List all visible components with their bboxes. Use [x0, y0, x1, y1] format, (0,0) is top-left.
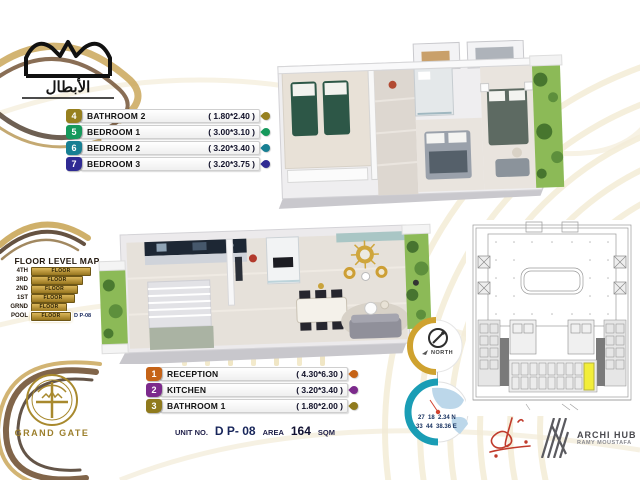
- legend-room-dims: ( 3.20*3.75 ): [208, 159, 255, 169]
- grand-gate-logo: GRAND GATE: [10, 372, 94, 438]
- legend-row-bathroom2: 4 BATHROOM 2( 1.80*2.40 ): [66, 109, 270, 123]
- upper-floor-plan-render: [266, 40, 566, 212]
- legend-number-badge: 3: [146, 399, 162, 413]
- area-value: 164: [291, 424, 311, 438]
- location-map-widget: 27 18 2.34 N 33 44 38.36 E: [402, 378, 472, 446]
- longitude-text: 33 44 38.36 E: [416, 423, 457, 432]
- legend-arrow-icon: [348, 384, 359, 395]
- upper-floor-legend: 4 BATHROOM 2( 1.80*2.40 ) 5 BEDROOM 1( 3…: [66, 109, 270, 171]
- legend-room-dims: ( 3.20*3.40 ): [296, 385, 343, 395]
- legend-number-badge: 1: [146, 367, 162, 381]
- legend-room-name: BATHROOM 2: [87, 111, 146, 121]
- company-logo-house-icon: [18, 28, 118, 80]
- legend-room-dims: ( 3.00*3.10 ): [208, 127, 255, 137]
- archi-hub-label: ARCHI HUB: [577, 430, 637, 440]
- latitude-text: 27 18 2.34 N: [418, 414, 456, 423]
- legend-room-name: RECEPTION: [167, 369, 218, 379]
- floor-row-pool-current: POOL FLOOR D P-08: [4, 312, 110, 320]
- legend-room-name: BEDROOM 1: [87, 127, 140, 137]
- floor-level-map: FLOOR LEVEL MAP 4TH FLOOR 3RD FLOOR 2ND …: [4, 256, 110, 320]
- brochure-page: الأبطال 4 BATHROOM 2( 1.80*2.40 ) 5 BEDR…: [0, 0, 640, 480]
- archi-hub-mark-icon: [538, 418, 572, 458]
- legend-number-badge: 4: [66, 109, 82, 123]
- legend-room-dims: ( 3.20*3.40 ): [208, 143, 255, 153]
- legend-room-name: KITCHEN: [167, 385, 206, 395]
- archi-hub-subtitle: RAMY MOUSTAFA: [577, 440, 637, 446]
- legend-number-badge: 6: [66, 141, 82, 155]
- legend-row-kitchen: 2 KITCHEN( 3.20*3.40 ): [146, 383, 358, 397]
- legend-room-name: BEDROOM 2: [87, 143, 140, 153]
- legend-room-dims: ( 1.80*2.00 ): [296, 401, 343, 411]
- legend-number-badge: 2: [146, 383, 162, 397]
- legend-row-bathroom1: 3 BATHROOM 1( 1.80*2.00 ): [146, 399, 358, 413]
- company-logo: الأبطال: [18, 28, 118, 101]
- floor-level-map-title: FLOOR LEVEL MAP: [4, 256, 110, 266]
- floor-row-grnd: GRND FLOOR: [4, 303, 110, 311]
- legend-room-dims: ( 4.30*6.30 ): [296, 369, 343, 379]
- floor-row-1st: 1ST FLOOR: [4, 294, 110, 302]
- unit-no-label: UNIT NO.: [175, 428, 208, 437]
- site-plan-drawing: [466, 220, 640, 416]
- legend-row-bedroom1: 5 BEDROOM 1( 3.00*3.10 ): [66, 125, 270, 139]
- legend-room-name: BEDROOM 3: [87, 159, 140, 169]
- legend-number-badge: 7: [66, 157, 82, 171]
- current-unit-tag: D P-08: [74, 313, 91, 319]
- unit-no-value: D P- 08: [215, 424, 256, 438]
- unit-info-line: UNIT NO. D P- 08 AREA 164 SQM: [150, 424, 360, 438]
- compass-widget: NORTH: [406, 316, 466, 376]
- company-logo-arabic-text: الأبطال: [18, 80, 118, 95]
- grand-gate-label: GRAND GATE: [10, 428, 94, 438]
- grand-gate-emblem-icon: [24, 372, 80, 428]
- ground-floor-plan-render: [98, 212, 432, 364]
- floor-row-2nd: 2ND FLOOR: [4, 285, 110, 293]
- legend-row-bedroom3: 7 BEDROOM 3( 3.20*3.75 ): [66, 157, 270, 171]
- area-label: AREA: [263, 428, 284, 437]
- archi-hub-logo: ARCHI HUB RAMY MOUSTAFA: [538, 418, 638, 458]
- highlighted-unit-dp08: [584, 363, 594, 390]
- floor-row-4th: 4TH FLOOR: [4, 267, 110, 275]
- ground-floor-legend: 1 RECEPTION( 4.30*6.30 ) 2 KITCHEN( 3.20…: [146, 367, 358, 413]
- legend-arrow-icon: [348, 400, 359, 411]
- legend-row-reception: 1 RECEPTION( 4.30*6.30 ): [146, 367, 358, 381]
- legend-room-dims: ( 1.80*2.40 ): [208, 111, 255, 121]
- signature-mark: [482, 412, 538, 462]
- legend-room-name: BATHROOM 1: [167, 401, 226, 411]
- legend-row-bedroom2: 6 BEDROOM 2( 3.20*3.40 ): [66, 141, 270, 155]
- legend-arrow-icon: [348, 368, 359, 379]
- legend-number-badge: 5: [66, 125, 82, 139]
- area-unit: SQM: [318, 428, 335, 437]
- north-label: NORTH: [431, 350, 453, 356]
- floor-row-3rd: 3RD FLOOR: [4, 276, 110, 284]
